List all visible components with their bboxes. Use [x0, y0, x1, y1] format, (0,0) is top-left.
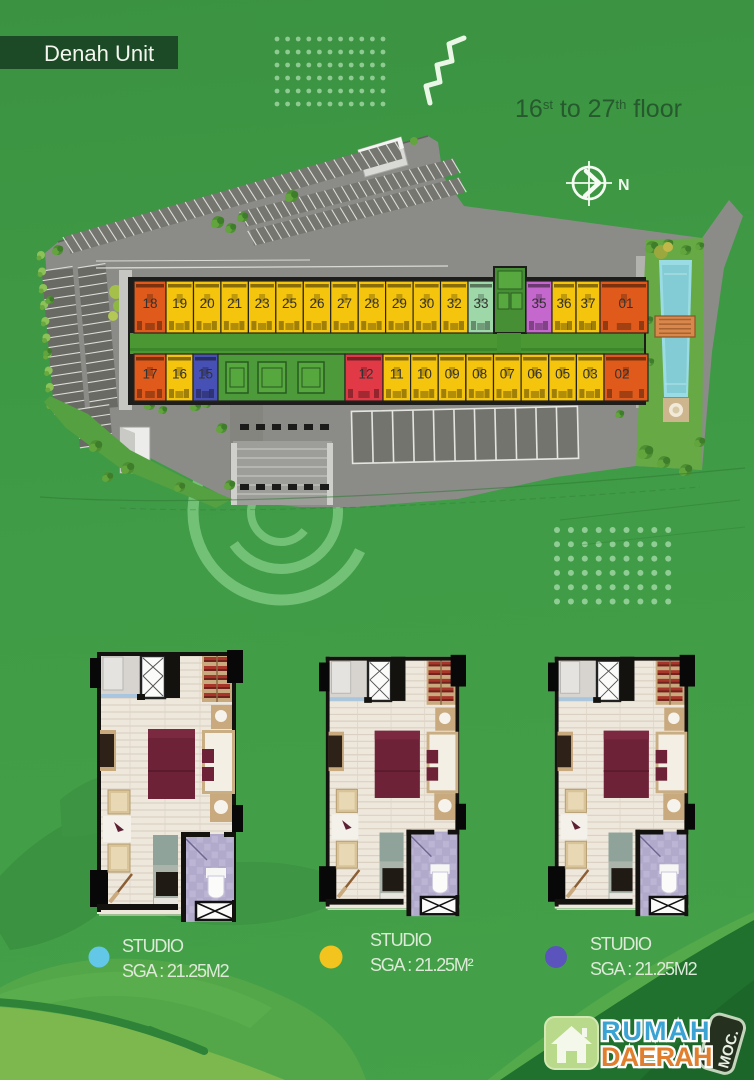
svg-text:SGA : 21.25M2: SGA : 21.25M2: [590, 959, 698, 979]
svg-text:17: 17: [142, 366, 157, 381]
svg-text:N: N: [618, 177, 630, 194]
svg-text:01: 01: [618, 296, 633, 311]
svg-text:02: 02: [614, 366, 629, 381]
svg-text:35: 35: [531, 296, 546, 311]
svg-text:16st to 27th floor: 16st to 27th floor: [515, 95, 682, 123]
svg-text:07: 07: [500, 366, 515, 381]
svg-text:10: 10: [417, 366, 432, 381]
svg-text:20: 20: [200, 296, 215, 311]
svg-text:23: 23: [255, 296, 270, 311]
svg-text:12: 12: [358, 366, 373, 381]
svg-text:26: 26: [309, 296, 324, 311]
svg-text:33: 33: [473, 296, 488, 311]
svg-text:SGA : 21.25M²: SGA : 21.25M²: [370, 955, 474, 975]
svg-text:29: 29: [392, 296, 407, 311]
svg-text:03: 03: [583, 366, 598, 381]
svg-text:28: 28: [364, 296, 379, 311]
svg-text:SGA : 21.25M2: SGA : 21.25M2: [122, 961, 230, 981]
svg-text:09: 09: [445, 366, 460, 381]
svg-text:27: 27: [337, 296, 352, 311]
svg-text:30: 30: [419, 296, 434, 311]
svg-text:19: 19: [172, 296, 187, 311]
svg-text:STUDIO: STUDIO: [590, 934, 652, 954]
svg-text:STUDIO: STUDIO: [370, 930, 432, 950]
svg-text:11: 11: [390, 366, 404, 381]
svg-text:15: 15: [198, 366, 213, 381]
svg-text:05: 05: [555, 366, 570, 381]
svg-text:08: 08: [472, 366, 487, 381]
svg-text:37: 37: [580, 296, 595, 311]
svg-text:25: 25: [282, 296, 297, 311]
svg-text:16: 16: [172, 366, 187, 381]
svg-text:21: 21: [227, 296, 242, 311]
svg-text:Denah Unit: Denah Unit: [44, 41, 154, 66]
svg-text:DAERAH: DAERAH: [601, 1042, 712, 1072]
svg-text:36: 36: [556, 296, 571, 311]
svg-text:06: 06: [527, 366, 542, 381]
svg-text:18: 18: [142, 296, 157, 311]
svg-text:32: 32: [447, 296, 462, 311]
svg-text:STUDIO: STUDIO: [122, 936, 184, 956]
